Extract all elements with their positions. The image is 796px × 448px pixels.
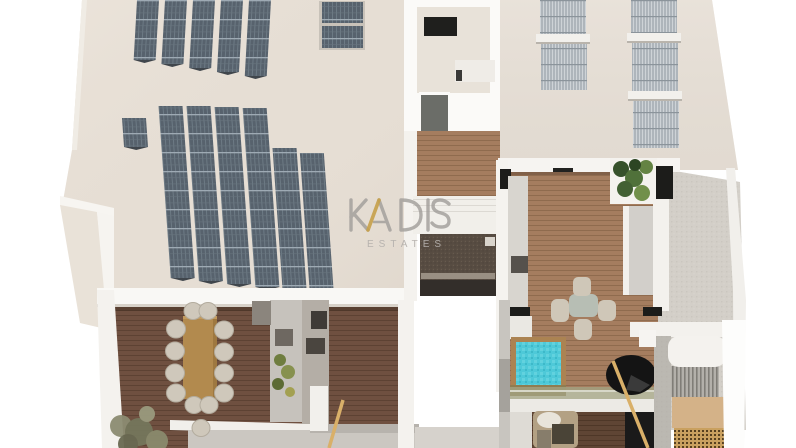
svg-text:ESTATES: ESTATES (367, 239, 446, 250)
